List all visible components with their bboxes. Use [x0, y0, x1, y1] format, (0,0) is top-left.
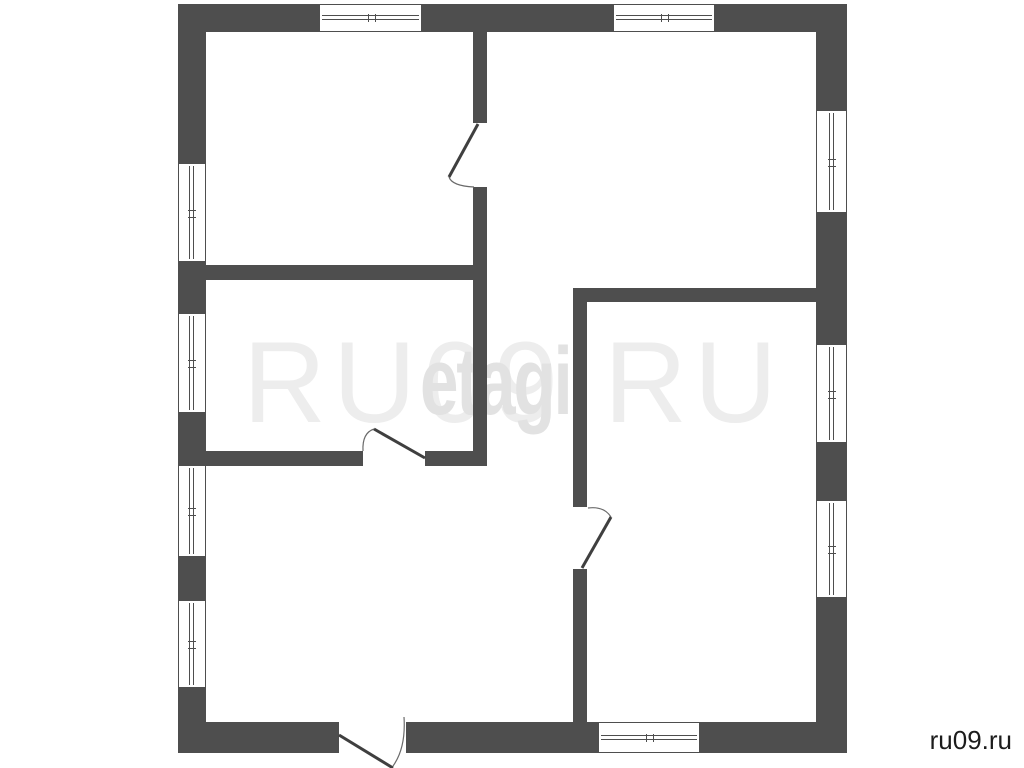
wall-interior-h2-right: [425, 451, 487, 466]
window-left-2: [178, 313, 206, 413]
window-tick: [828, 391, 836, 399]
window-right-2: [816, 344, 847, 443]
window-tick: [828, 159, 836, 167]
wall-interior-v2-lower: [573, 569, 587, 722]
wall-interior-v2-upper: [573, 288, 587, 507]
wall-right-1: [816, 4, 847, 110]
door-leaf-bottom-right-room: [582, 517, 611, 568]
wall-interior-h2-left: [206, 451, 363, 466]
door-leaf-entrance: [339, 735, 393, 768]
wall-left-4: [178, 557, 206, 600]
wall-left-3: [178, 413, 206, 465]
wall-right-3: [816, 443, 847, 500]
floor-plan: RU09.RU etagi: [0, 0, 1024, 768]
window-left-4: [178, 600, 206, 688]
wall-top-middle: [422, 4, 613, 32]
wall-interior-h3: [573, 288, 817, 302]
window-bottom-1: [598, 722, 700, 753]
window-tick: [661, 14, 669, 22]
wall-right-4: [816, 598, 847, 753]
window-top-2: [613, 4, 715, 32]
door-leaf-top-left-room: [449, 124, 478, 177]
window-left-3: [178, 465, 206, 557]
wall-interior-h1: [206, 265, 473, 280]
wall-interior-v1-upper: [473, 32, 487, 123]
window-tick: [188, 210, 196, 218]
window-tick: [188, 508, 196, 516]
wall-left-2: [178, 262, 206, 313]
window-top-1: [319, 4, 422, 32]
site-label: ru09.ru: [920, 726, 1012, 755]
door-arc-top-left-room: [449, 177, 474, 187]
door-arc-entrance: [393, 717, 404, 766]
wall-interior-v1-lower: [473, 187, 487, 466]
window-left-1: [178, 163, 206, 262]
window-right-3: [816, 500, 847, 598]
window-tick: [828, 546, 836, 554]
window-tick: [188, 641, 196, 649]
window-tick: [368, 14, 376, 22]
wall-left-1: [178, 4, 206, 163]
wall-left-5: [178, 688, 206, 753]
window-tick: [646, 734, 654, 742]
door-arc-bottom-right-room: [588, 508, 611, 517]
window-tick: [188, 360, 196, 368]
watermark-etagi: etagi: [420, 334, 571, 430]
wall-right-2: [816, 213, 847, 344]
window-right-1: [816, 110, 847, 213]
wall-bottom-middle: [406, 722, 598, 753]
